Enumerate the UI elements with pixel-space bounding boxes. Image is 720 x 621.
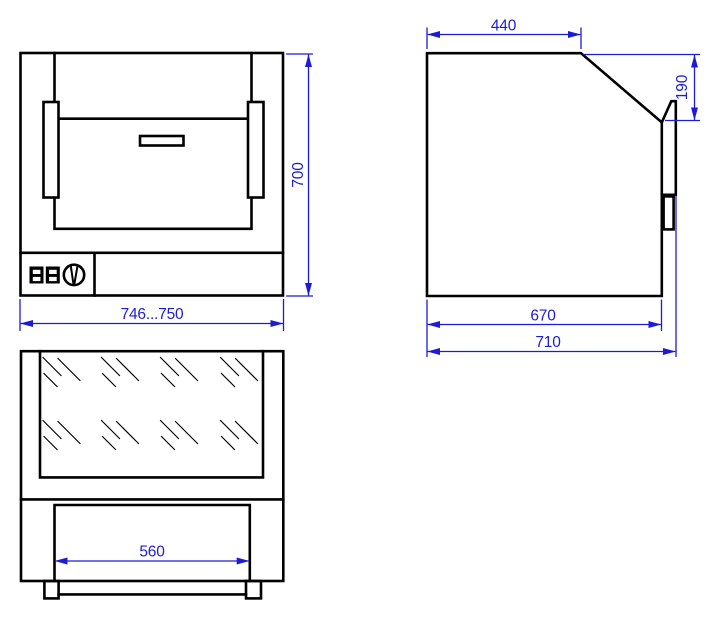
side-body-outline xyxy=(427,53,662,296)
control-display-2 xyxy=(46,267,60,284)
front-view-dimensions: 746...750 700 xyxy=(20,54,313,331)
side-door-edge xyxy=(662,101,676,195)
top-view-dimensions: 560 xyxy=(55,544,249,562)
technical-drawing-canvas: 746...750 700 440 190 670 710 xyxy=(0,0,720,621)
dim-label-side-body-depth: 670 xyxy=(530,308,556,325)
side-door-handle xyxy=(664,196,674,229)
control-display-1 xyxy=(30,267,44,284)
top-foot-right xyxy=(246,581,261,598)
control-knob-icon xyxy=(64,265,84,285)
display-slot-icon xyxy=(33,277,41,281)
dim-label-top-opening-width: 560 xyxy=(139,544,165,561)
display-slot-icon xyxy=(33,270,41,274)
knob-pointer xyxy=(71,265,78,284)
display-slot-icon xyxy=(49,277,57,281)
side-view-dimensions: 440 190 670 710 xyxy=(427,18,700,358)
dim-label-front-height: 700 xyxy=(290,162,307,188)
front-door-handle xyxy=(140,136,184,146)
glass-hatch-marks xyxy=(43,358,258,450)
dim-label-side-top-depth: 440 xyxy=(491,18,517,35)
display-slot-icon xyxy=(49,270,57,274)
furnace-orthographic-drawing: 746...750 700 440 190 670 710 xyxy=(0,0,720,621)
dim-label-side-overall-depth: 710 xyxy=(535,334,561,351)
dim-label-front-width: 746...750 xyxy=(121,306,184,323)
top-glass-panel xyxy=(40,351,263,477)
front-outer-body xyxy=(21,53,284,296)
side-view xyxy=(427,53,676,296)
front-view xyxy=(21,53,284,296)
front-door-hinge-left xyxy=(44,102,59,198)
front-door-hinge-right xyxy=(248,102,264,198)
top-foot-left xyxy=(44,581,58,598)
dim-label-side-door-height: 190 xyxy=(674,74,691,100)
